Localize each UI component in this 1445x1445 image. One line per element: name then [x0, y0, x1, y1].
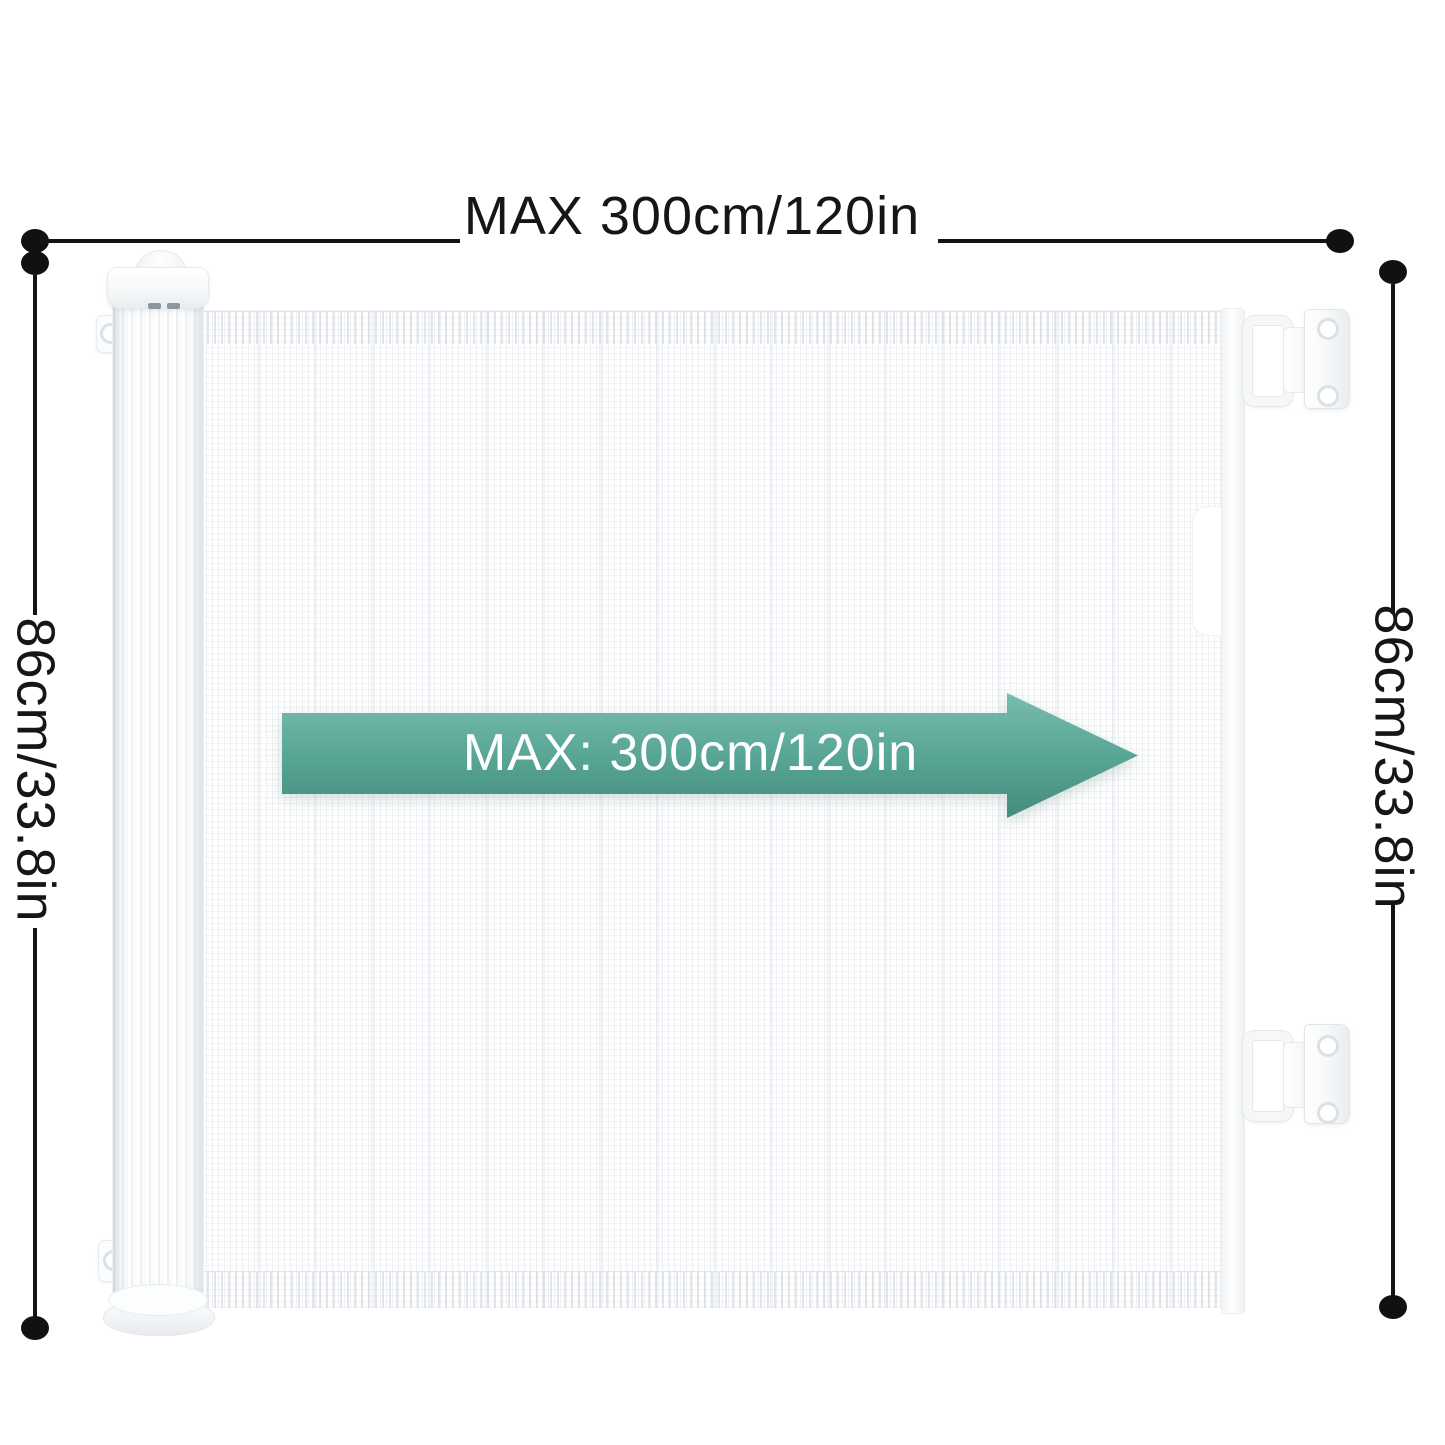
max-width-arrow-label: MAX: 300cm/120in: [282, 713, 1007, 794]
screw-hole-icon: [1317, 1035, 1339, 1057]
post-base-collar: [108, 1284, 208, 1316]
gate-mesh-bottom-hem: [200, 1271, 1224, 1308]
screw-hole-icon: [1317, 385, 1339, 407]
top-dimension-line-right: [938, 239, 1336, 243]
gate-roller-post: [113, 300, 203, 1292]
left-dimension-line-lower: [33, 928, 37, 1318]
screw-hole-icon: [1317, 318, 1339, 340]
cap-vent-icon: [167, 303, 180, 309]
right-dimension-line-upper: [1391, 284, 1395, 614]
gate-handle-slot: [1192, 506, 1224, 636]
dimension-endpoint-dot: [1326, 229, 1354, 253]
gate-mesh-top-hem: [200, 311, 1224, 344]
right-dimension-label: 86cm/33.8in: [1365, 604, 1422, 909]
dimension-endpoint-dot: [21, 251, 49, 275]
left-dimension-label: 86cm/33.8in: [7, 617, 64, 922]
cap-vent-icon: [148, 303, 161, 309]
top-dimension-line-left: [40, 239, 460, 243]
gate-edge-bar: [1222, 309, 1244, 1313]
dimension-endpoint-dot: [1379, 1295, 1407, 1319]
dimension-endpoint-dot: [21, 1316, 49, 1340]
top-dimension-label: MAX 300cm/120in: [462, 188, 922, 245]
right-dimension-line-lower: [1391, 903, 1395, 1297]
screw-hole-icon: [1317, 1102, 1339, 1124]
dimension-endpoint-dot: [1379, 260, 1407, 284]
left-dimension-line-upper: [33, 275, 37, 615]
product-dimension-diagram: MAX: 300cm/120in MAX 300cm/120in 86cm/33…: [0, 0, 1445, 1445]
